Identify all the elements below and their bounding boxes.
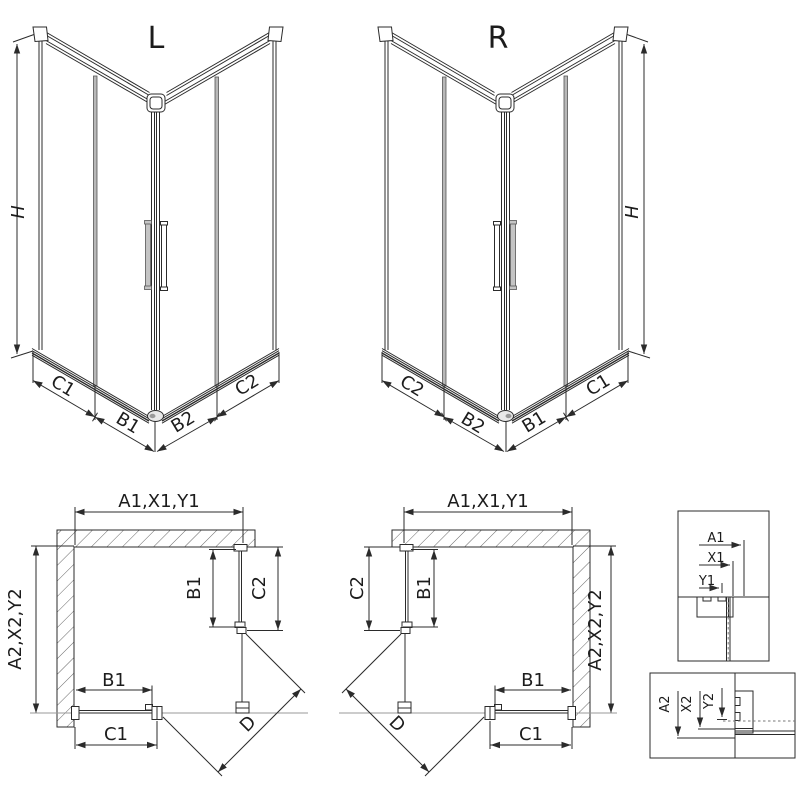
detail-a1-label: A1 — [707, 531, 724, 546]
detail-a2-label: A2 — [658, 695, 673, 712]
plan-left-bottom-c1-label: C1 — [104, 724, 128, 745]
plan-left-depth-label: A2,X2,Y2 — [5, 588, 26, 669]
view-title-right: R — [488, 21, 509, 56]
detail-x1-label: X1 — [707, 551, 724, 566]
plan-right-side-b1-label: B1 — [414, 576, 435, 600]
plan-left-side-b1-label: B1 — [184, 576, 205, 600]
plan-right-bottom-b1-label: B1 — [521, 670, 545, 691]
plan-right-side-c2-label: C2 — [347, 576, 368, 600]
plan-left-bottom-b1-label: B1 — [102, 670, 126, 691]
plan-left-width-label: A1,X1,Y1 — [118, 491, 199, 512]
technical-drawing-page: L H C1 B1 B2 C2 R H C2 B2 B1 C1 A1,X1,Y1… — [0, 0, 800, 800]
dim-label-height-left: H — [8, 205, 29, 219]
plan-right-width-label: A1,X1,Y1 — [447, 491, 528, 512]
plan-left-side-c2-label: C2 — [249, 576, 270, 600]
plan-right-depth-label: A2,X2,Y2 — [585, 589, 606, 670]
shower-enclosure-technical-drawing: L H C1 B1 B2 C2 R H C2 B2 B1 C1 A1,X1,Y1… — [0, 0, 800, 800]
detail-y1-label: Y1 — [698, 574, 715, 589]
detail-y2-label: Y2 — [702, 693, 717, 710]
plan-right-bottom-c1-label: C1 — [519, 724, 543, 745]
view-title-left: L — [148, 21, 165, 56]
dim-label-height-right: H — [622, 205, 643, 219]
detail-x2-label: X2 — [680, 695, 695, 712]
